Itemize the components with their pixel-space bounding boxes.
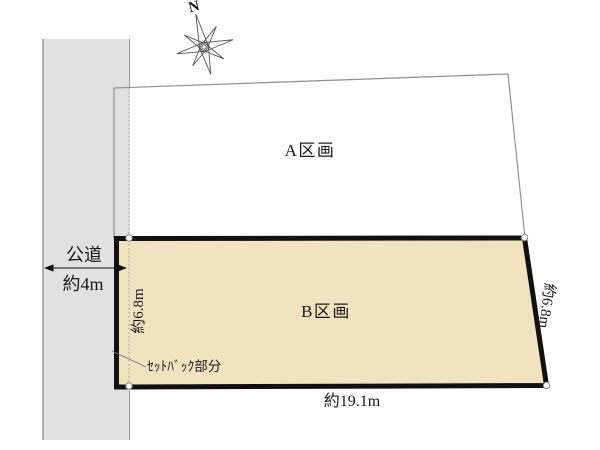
corner-dot-bottom-left [126, 383, 132, 389]
plot-b-depth-right-label: 約6.8m [535, 282, 558, 330]
corner-dot-bottom-right [543, 382, 549, 388]
compass-inner-circle [201, 44, 206, 49]
plot-b-depth-left-label: 約6.8m [130, 288, 147, 334]
road-name-label: 公道 [66, 245, 102, 265]
diagram-svg: 公道 約4m A区画 B区画 約19.1m 約6.8m 約6.8m ｾｯﾄﾊﾞｯ… [0, 0, 600, 450]
land-plot-diagram: 公道 約4m A区画 B区画 約19.1m 約6.8m 約6.8m ｾｯﾄﾊﾞｯ… [0, 0, 600, 450]
corner-dot-top-left [126, 235, 132, 241]
plot-b-frontage-label: 約19.1m [324, 392, 381, 410]
plot-b-label: B区画 [301, 302, 351, 321]
compass-star-diagonals [173, 15, 236, 78]
road-width-label: 約4m [62, 274, 103, 294]
compass-star-ew [176, 35, 234, 58]
compass-north-label: N [187, 0, 202, 16]
corner-dot-top-right [521, 234, 527, 240]
setback-note-label: ｾｯﾄﾊﾞｯｸ部分 [147, 359, 221, 374]
compass: N [161, 0, 244, 86]
plot-a-label: A区画 [285, 141, 336, 160]
compass-star [165, 6, 244, 86]
